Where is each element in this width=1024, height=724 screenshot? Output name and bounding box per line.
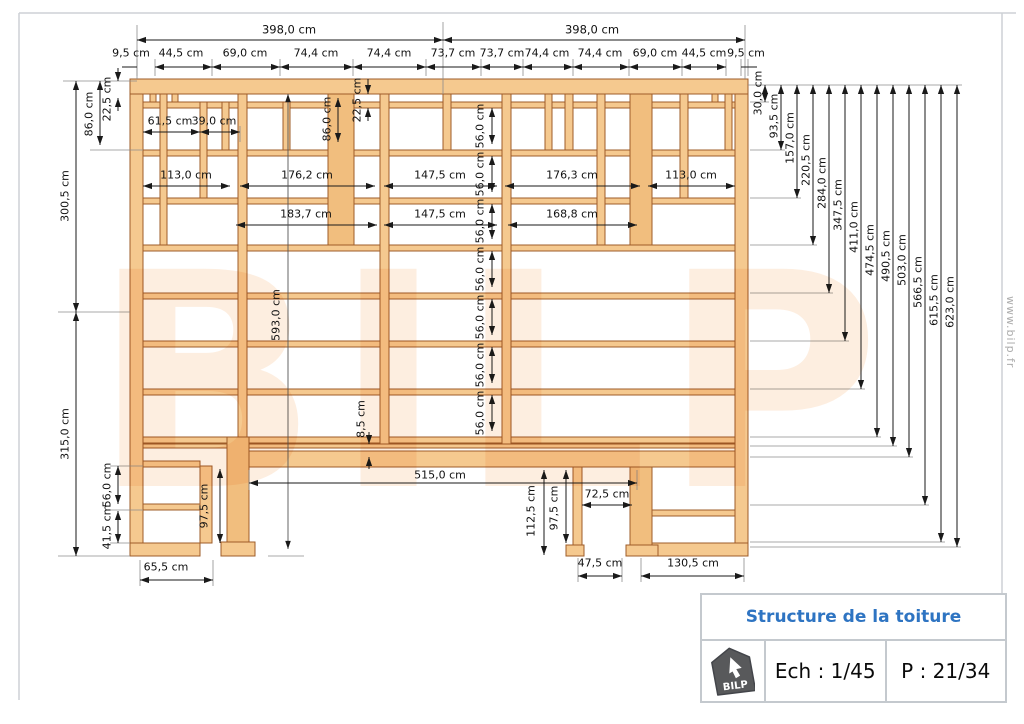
page-value: P : 21/34 <box>901 659 990 683</box>
dim-label-top: 398,0 cm <box>565 24 619 36</box>
dim-label-interior: 56,0 cm <box>475 199 486 244</box>
dim-label-top: 74,4 cm <box>294 48 339 59</box>
dim-label-top: 69,0 cm <box>633 48 678 59</box>
bilp-logo-icon: BILP <box>711 646 755 696</box>
dim-label-left: 86,0 cm <box>84 92 95 137</box>
dim-label-interior: 147,5 cm <box>414 209 466 220</box>
dim-label-right: 503,0 cm <box>897 234 908 286</box>
dim-label-interior: 72,5 cm <box>585 489 630 500</box>
dim-label-right: 615,5 cm <box>929 274 940 326</box>
dim-label-interior: 593,0 cm <box>271 289 282 341</box>
dim-label-right: 30,0 cm <box>753 71 764 116</box>
drawing-title: Structure de la toiture <box>746 607 962 627</box>
dim-label-right: 347,5 cm <box>833 179 844 231</box>
dim-label-right: 284,0 cm <box>817 157 828 209</box>
dim-label-bottom: 65,5 cm <box>144 562 189 573</box>
dim-label-top: 73,7 cm <box>431 48 476 59</box>
title-block: Structure de la toiture BILP Ech : 1/45 … <box>700 593 1007 703</box>
dim-label-top: 74,4 cm <box>367 48 412 59</box>
dim-label-interior: 112,5 cm <box>526 485 537 537</box>
dim-label-interior: 168,8 cm <box>546 209 598 220</box>
dim-label-interior: 176,2 cm <box>281 170 333 181</box>
dim-label-left: 315,0 cm <box>60 408 71 460</box>
dim-label-left: 22,5 cm <box>102 77 113 122</box>
dim-label-top: 74,4 cm <box>525 48 570 59</box>
dim-label-top: 73,7 cm <box>480 48 525 59</box>
dim-label-right: 623,0 cm <box>945 276 956 328</box>
dim-label-top: 74,4 cm <box>578 48 623 59</box>
dim-label-top: 9,5 cm <box>727 48 765 59</box>
scale-cell: Ech : 1/45 <box>766 641 887 701</box>
dim-label-interior: 8,5 cm <box>356 400 367 438</box>
dim-label-right: 490,5 cm <box>881 230 892 282</box>
dim-label-left: 41,5 cm <box>102 505 113 550</box>
site-watermark: www.bilp.fr <box>1004 296 1017 368</box>
dim-label-left: 300,5 cm <box>60 170 71 222</box>
dim-label-interior: 515,0 cm <box>414 470 466 481</box>
dim-label-interior: 97,5 cm <box>199 484 210 529</box>
dim-label-interior: 56,0 cm <box>475 295 486 340</box>
dim-label-right: 474,5 cm <box>865 224 876 276</box>
dim-label-interior: 97,5 cm <box>549 486 560 531</box>
page-cell: P : 21/34 <box>887 641 1006 701</box>
scale-value: Ech : 1/45 <box>775 659 876 683</box>
logo-cell: BILP <box>702 641 766 701</box>
dim-label-right: 220,5 cm <box>801 134 812 186</box>
dim-label-top: 44,5 cm <box>682 48 727 59</box>
dim-label-right: 411,0 cm <box>849 201 860 253</box>
dim-label-interior: 86,0 cm <box>322 97 333 142</box>
dim-label-interior: 147,5 cm <box>414 170 466 181</box>
dim-label-interior: 56,0 cm <box>475 152 486 197</box>
dim-label-interior: 56,0 cm <box>475 104 486 149</box>
dim-label-top: 398,0 cm <box>262 24 316 36</box>
dim-label-interior: 183,7 cm <box>280 209 332 220</box>
dim-label-interior: 39,0 cm <box>192 116 237 127</box>
dim-label-right: 566,5 cm <box>913 256 924 308</box>
dim-label-top: 69,0 cm <box>223 48 268 59</box>
dim-label-interior: 56,0 cm <box>475 391 486 436</box>
dim-label-right: 157,0 cm <box>785 112 796 164</box>
dim-label-interior: 22,5 cm <box>352 78 363 123</box>
dim-label-interior: 56,0 cm <box>475 343 486 388</box>
dim-label-interior: 176,3 cm <box>546 170 598 181</box>
dim-label-interior: 56,0 cm <box>475 247 486 292</box>
dim-label-left: 56,0 cm <box>102 463 113 508</box>
title-row: Structure de la toiture <box>702 595 1005 641</box>
dim-label-interior: 113,0 cm <box>665 170 717 181</box>
dim-label-bottom: 47,5 cm <box>578 558 623 569</box>
dim-label-interior: 61,5 cm <box>148 116 193 127</box>
dim-label-right: 93,5 cm <box>769 94 780 139</box>
dim-label-top: 44,5 cm <box>159 48 204 59</box>
blueprint-page: BILP 398,0 cm398,0 cm9,5 cm44,5 cm69,0 c… <box>0 0 1024 724</box>
dim-label-top: 9,5 cm <box>112 48 150 59</box>
dim-label-bottom: 130,5 cm <box>667 558 719 569</box>
dim-label-interior: 113,0 cm <box>160 170 212 181</box>
